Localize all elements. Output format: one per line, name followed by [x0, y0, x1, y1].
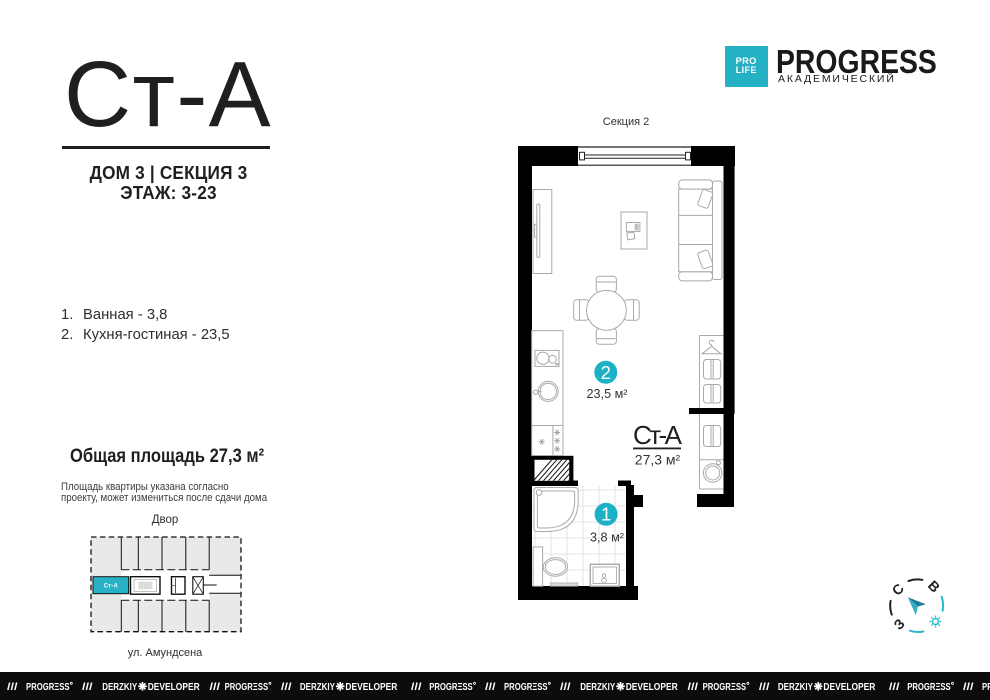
svg-text:3,8 м²: 3,8 м² — [590, 529, 625, 544]
svg-text:1: 1 — [601, 504, 611, 525]
svg-text:Секция 2: Секция 2 — [603, 116, 649, 128]
svg-text:Ст-А: Ст-А — [104, 584, 119, 590]
svg-text:27,3 м²: 27,3 м² — [635, 452, 681, 468]
svg-text:Ст-А: Ст-А — [633, 420, 683, 450]
svg-text:З: З — [890, 615, 908, 633]
svg-text:В: В — [925, 577, 943, 595]
svg-text:С: С — [889, 580, 907, 598]
svg-text:2: 2 — [601, 362, 611, 383]
svg-text:23,5 м²: 23,5 м² — [587, 386, 629, 401]
